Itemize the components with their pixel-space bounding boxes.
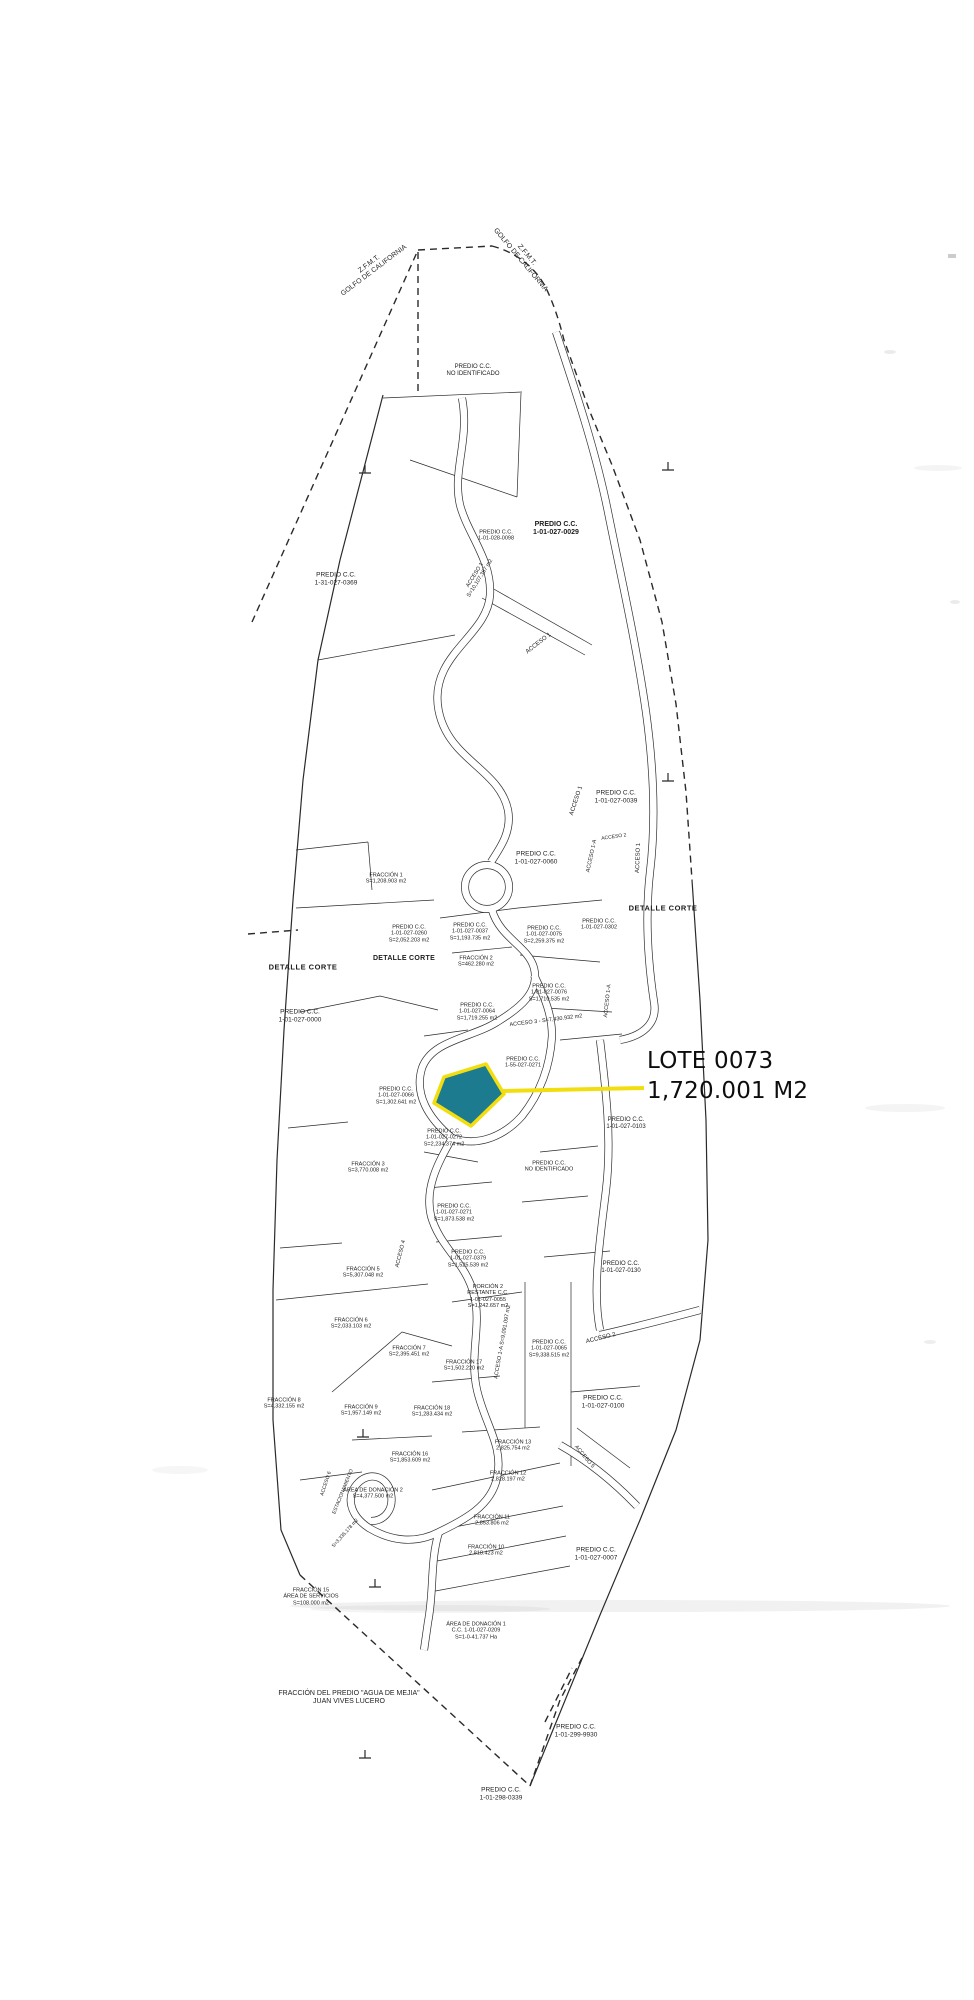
- lot-callout-area: 1,720.001 M2: [647, 1076, 808, 1106]
- survey-ticks: [357, 462, 674, 1758]
- coast-line: [252, 250, 418, 622]
- lot-callout: LOTE 0073 1,720.001 M2: [647, 1046, 808, 1107]
- survey-tick: [369, 1579, 381, 1587]
- survey-tick: [662, 462, 674, 470]
- survey-tick: [359, 1750, 371, 1758]
- survey-tick: [662, 773, 674, 781]
- roads: [351, 332, 700, 1650]
- lot-callout-title: LOTE 0073: [647, 1046, 808, 1076]
- survey-tick: [359, 465, 371, 473]
- map-drawing: [0, 0, 974, 2000]
- subdivision-lines: [276, 392, 640, 1592]
- top-cap-line: [418, 246, 492, 392]
- cadastral-map: Z.F.M.T. GOLFO DE CALIFORNIAZ.F.M.T. GOL…: [0, 0, 974, 2000]
- survey-tick: [357, 1429, 369, 1437]
- leader-line: [503, 1088, 644, 1091]
- left-boundary: [273, 395, 383, 1575]
- right-upper-dashed: [492, 246, 692, 880]
